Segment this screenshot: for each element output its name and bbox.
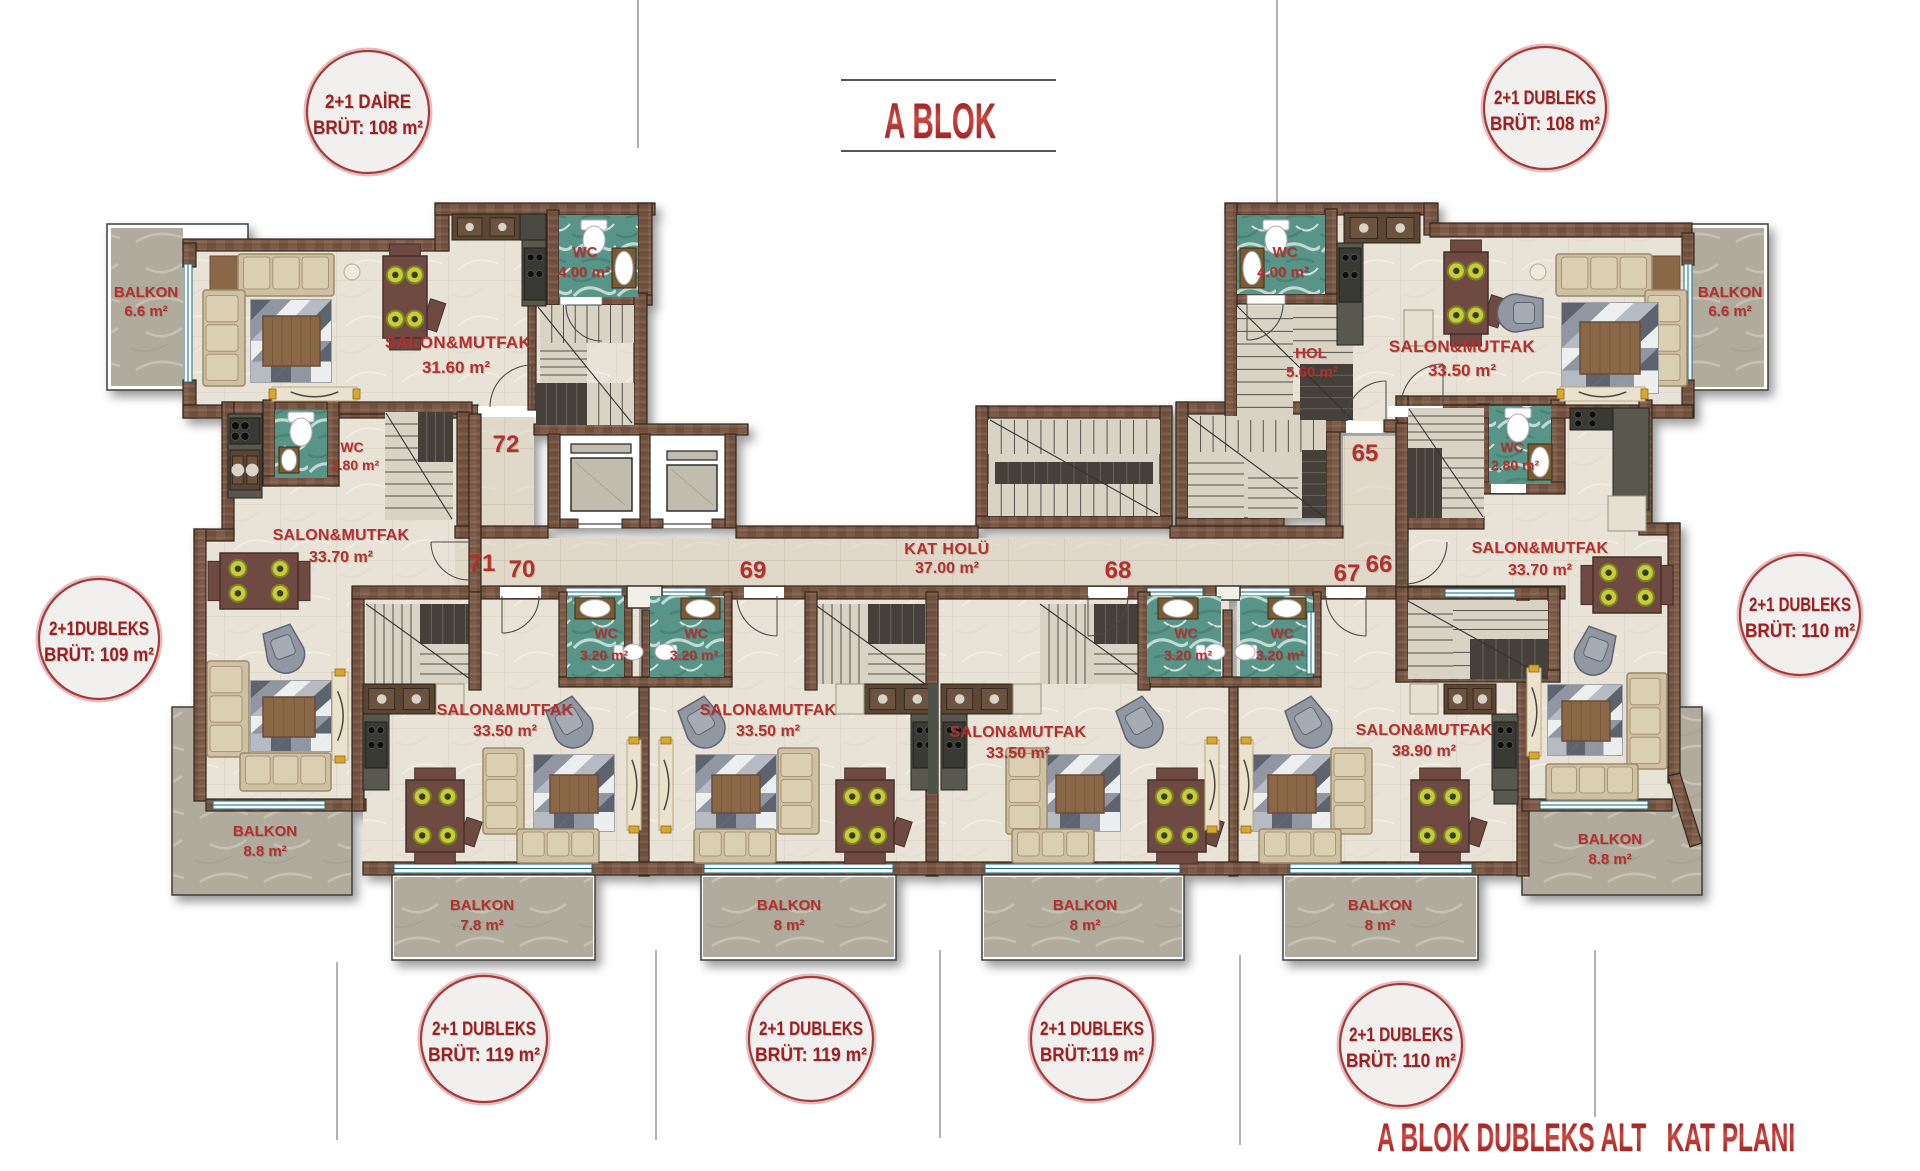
svg-text:SALON&MUTFAK: SALON&MUTFAK — [950, 724, 1087, 741]
svg-text:7.8 m²: 7.8 m² — [460, 917, 503, 934]
svg-text:68: 68 — [1105, 557, 1132, 584]
svg-text:BALKON: BALKON — [1698, 284, 1762, 301]
svg-text:BALKON: BALKON — [1348, 897, 1412, 914]
svg-text:2.80 m²: 2.80 m² — [331, 457, 380, 473]
svg-text:BRÜT: 108 m²: BRÜT: 108 m² — [313, 118, 423, 139]
svg-text:WC: WC — [340, 439, 363, 455]
svg-text:65: 65 — [1352, 440, 1379, 467]
svg-text:WC: WC — [1174, 625, 1197, 641]
svg-text:33.50 m²: 33.50 m² — [1428, 361, 1496, 380]
svg-text:33.50 m²: 33.50 m² — [473, 723, 537, 740]
svg-text:33.70 m²: 33.70 m² — [309, 549, 373, 566]
svg-text:BALKON: BALKON — [757, 897, 821, 914]
svg-text:31.60 m²: 31.60 m² — [422, 358, 490, 377]
svg-text:WC: WC — [1270, 625, 1293, 641]
svg-text:3.20 m²: 3.20 m² — [1256, 647, 1305, 663]
svg-text:70: 70 — [509, 556, 536, 583]
svg-text:8 m²: 8 m² — [774, 917, 805, 934]
svg-text:BRÜT: 109 m²: BRÜT: 109 m² — [44, 645, 154, 666]
svg-text:8.8 m²: 8.8 m² — [243, 843, 286, 860]
svg-text:72: 72 — [493, 431, 520, 458]
svg-text:HOL: HOL — [1295, 345, 1327, 362]
svg-text:SALON&MUTFAK: SALON&MUTFAK — [700, 702, 837, 719]
svg-text:6.6 m²: 6.6 m² — [1708, 303, 1751, 320]
svg-text:BRÜT:119 m²: BRÜT:119 m² — [1040, 1045, 1144, 1066]
svg-text:A BLOK DUBLEKS ALT KAT PLANI: A BLOK DUBLEKS ALT KAT PLANI — [1377, 1116, 1795, 1160]
svg-text:2+1DUBLEKS: 2+1DUBLEKS — [49, 619, 149, 640]
svg-text:66: 66 — [1366, 551, 1393, 578]
svg-text:BRÜT: 110 m²: BRÜT: 110 m² — [1346, 1051, 1456, 1072]
svg-text:3.20 m²: 3.20 m² — [670, 647, 719, 663]
svg-text:BRÜT: 108 m²: BRÜT: 108 m² — [1490, 114, 1600, 135]
svg-text:WC: WC — [684, 625, 707, 641]
svg-text:2+1 DUBLEKS: 2+1 DUBLEKS — [1749, 595, 1851, 616]
svg-text:A BLOK: A BLOK — [884, 93, 996, 149]
svg-text:2+1 DAİRE: 2+1 DAİRE — [325, 92, 411, 113]
svg-text:3.20 m²: 3.20 m² — [1164, 647, 1213, 663]
svg-text:WC: WC — [1500, 439, 1523, 455]
svg-text:4.00 m²: 4.00 m² — [558, 264, 610, 281]
svg-text:2+1 DUBLEKS: 2+1 DUBLEKS — [432, 1019, 536, 1040]
svg-text:2+1 DUBLEKS: 2+1 DUBLEKS — [1494, 88, 1596, 109]
svg-text:SALON&MUTFAK: SALON&MUTFAK — [1389, 337, 1536, 356]
svg-text:4.00 m²: 4.00 m² — [1257, 264, 1309, 281]
svg-text:BALKON: BALKON — [1578, 831, 1642, 848]
svg-text:8 m²: 8 m² — [1365, 917, 1396, 934]
svg-text:2+1 DUBLEKS: 2+1 DUBLEKS — [759, 1019, 863, 1040]
svg-text:33.50 m²: 33.50 m² — [736, 723, 800, 740]
svg-text:SALON&MUTFAK: SALON&MUTFAK — [1356, 722, 1493, 739]
svg-text:5.60 m²: 5.60 m² — [1286, 364, 1338, 381]
svg-text:BRÜT: 119 m²: BRÜT: 119 m² — [428, 1045, 540, 1066]
svg-text:6.6 m²: 6.6 m² — [124, 303, 167, 320]
svg-text:WC: WC — [1273, 244, 1298, 261]
svg-text:WC: WC — [594, 625, 617, 641]
svg-text:2+1 DUBLEKS: 2+1 DUBLEKS — [1349, 1025, 1453, 1046]
svg-text:3.20 m²: 3.20 m² — [580, 647, 629, 663]
svg-text:SALON&MUTFAK: SALON&MUTFAK — [385, 333, 532, 352]
svg-text:BALKON: BALKON — [233, 823, 297, 840]
svg-text:38.90 m²: 38.90 m² — [1392, 743, 1456, 760]
svg-text:2+1 DUBLEKS: 2+1 DUBLEKS — [1040, 1019, 1144, 1040]
svg-text:8.8 m²: 8.8 m² — [1588, 851, 1631, 868]
svg-text:33.50 m²: 33.50 m² — [986, 745, 1050, 762]
svg-text:BALKON: BALKON — [114, 284, 178, 301]
svg-text:67: 67 — [1334, 560, 1361, 587]
svg-text:69: 69 — [740, 557, 767, 584]
svg-text:BRÜT: 119 m²: BRÜT: 119 m² — [755, 1045, 867, 1066]
svg-text:71: 71 — [469, 550, 496, 577]
svg-text:KAT HOLÜ: KAT HOLÜ — [904, 539, 989, 558]
svg-text:SALON&MUTFAK: SALON&MUTFAK — [1472, 540, 1609, 557]
svg-text:BALKON: BALKON — [450, 897, 514, 914]
svg-text:8 m²: 8 m² — [1070, 917, 1101, 934]
svg-text:37.00 m²: 37.00 m² — [915, 560, 979, 577]
svg-text:33.70 m²: 33.70 m² — [1508, 562, 1572, 579]
svg-text:WC: WC — [573, 244, 598, 261]
svg-text:2.80 m²: 2.80 m² — [1491, 457, 1540, 473]
svg-text:SALON&MUTFAK: SALON&MUTFAK — [437, 702, 574, 719]
svg-text:BALKON: BALKON — [1053, 897, 1117, 914]
svg-text:BRÜT: 110 m²: BRÜT: 110 m² — [1745, 621, 1855, 642]
svg-text:SALON&MUTFAK: SALON&MUTFAK — [273, 527, 410, 544]
